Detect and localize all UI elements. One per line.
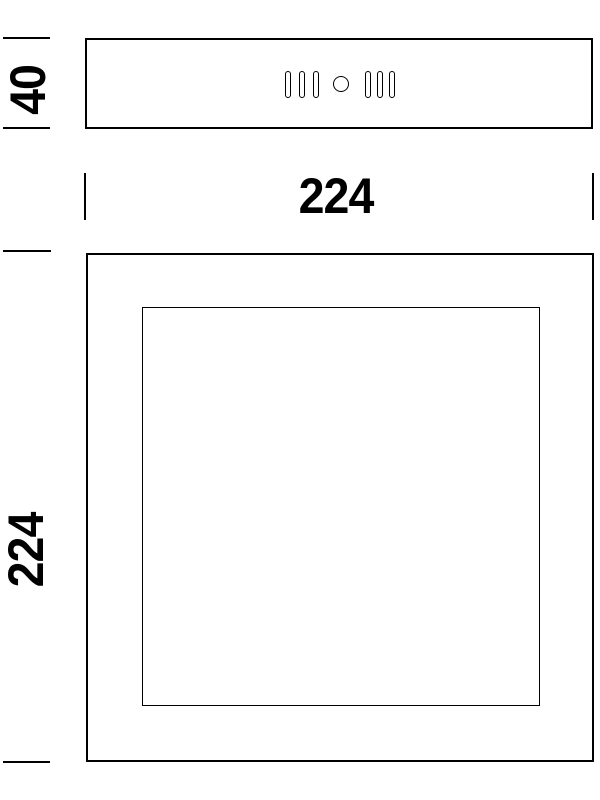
- dimension-label-front-height: 224: [1, 513, 51, 588]
- dimension-tick: [3, 127, 50, 129]
- dimension-tick: [3, 250, 51, 252]
- dimension-label-width: 224: [299, 171, 374, 221]
- dimension-tick: [3, 37, 50, 39]
- dimension-tick: [592, 173, 594, 220]
- vent-slot-icon: [299, 71, 305, 98]
- vent-slot-icon: [377, 71, 383, 98]
- vent-slot-icon: [313, 71, 319, 98]
- dimension-label-side-height: 40: [3, 65, 53, 115]
- vent-slot-icon: [389, 71, 395, 98]
- screw-hole-icon: [333, 76, 349, 92]
- technical-drawing: 40 224 224: [0, 0, 600, 800]
- vent-slot-icon: [285, 71, 291, 98]
- vent-slot-icon: [365, 71, 371, 98]
- dimension-tick: [3, 761, 50, 763]
- front-view-inner-panel: [142, 307, 540, 706]
- dimension-tick: [84, 173, 86, 220]
